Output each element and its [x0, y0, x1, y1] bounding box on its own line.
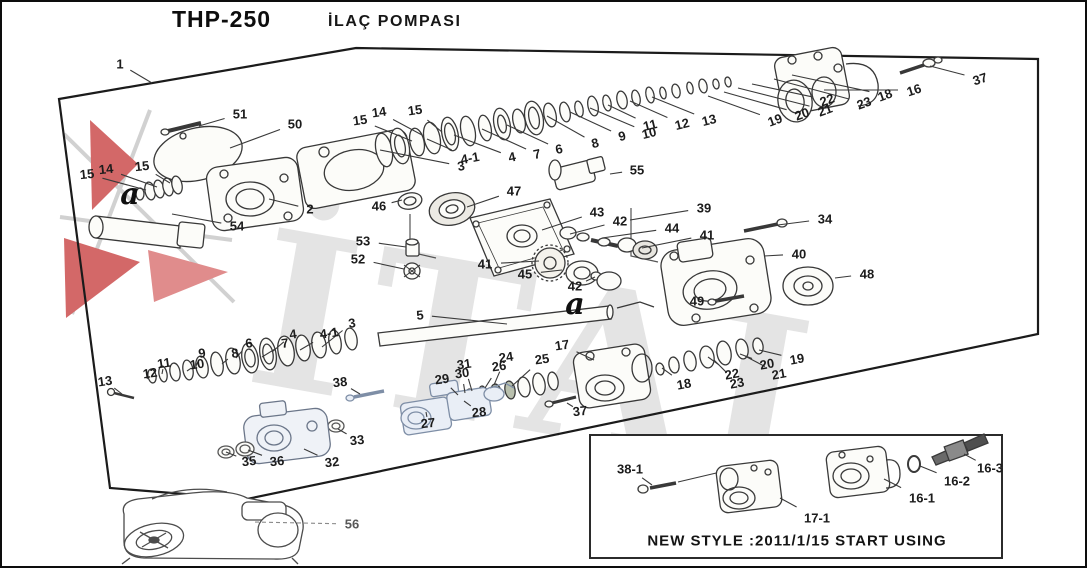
part-callout-27: 27: [420, 416, 436, 430]
leader-line-17-1: [780, 498, 797, 507]
leader-line-17: [577, 352, 595, 360]
part-callout-55: 55: [630, 164, 644, 177]
leader-line-41: [642, 238, 691, 248]
leader-line-45: [541, 270, 562, 272]
leader-line-13: [114, 388, 122, 394]
leader-line-8: [222, 359, 228, 364]
leader-line-26: [485, 378, 491, 388]
part-callout-1: 1: [116, 58, 123, 71]
part-callout-15: 15: [79, 167, 95, 181]
part-callout-12: 12: [142, 366, 158, 381]
leader-line-53: [379, 243, 406, 247]
leader-line-42: [570, 225, 605, 234]
page-title-model: THP-250: [172, 6, 271, 33]
part-callout-19: 19: [789, 351, 806, 366]
part-callout-48: 48: [860, 268, 874, 281]
part-callout-33: 33: [349, 433, 365, 447]
part-callout-15: 15: [352, 113, 368, 128]
leader-line-43: [542, 217, 582, 230]
leader-line-22: [708, 357, 719, 365]
leader-line-7: [262, 349, 275, 357]
part-callout-43: 43: [590, 206, 604, 219]
leader-line-18: [662, 368, 672, 375]
leader-line-12: [630, 101, 667, 118]
leader-line-16-2: [920, 466, 937, 473]
part-callout-46: 46: [372, 200, 386, 213]
leader-line-47: [467, 196, 499, 207]
part-callout-15: 15: [407, 103, 423, 118]
leader-line-42: [586, 277, 595, 281]
part-callout-28: 28: [471, 405, 487, 419]
part-callout-12: 12: [673, 116, 690, 132]
leader-line-6: [507, 125, 548, 144]
leader-line-13: [652, 97, 694, 114]
leader-line-38: [351, 389, 360, 394]
part-callout-13: 13: [97, 374, 113, 389]
part-callout-11: 11: [642, 117, 658, 133]
leader-line-29: [451, 388, 458, 395]
part-callout-35: 35: [241, 454, 257, 468]
part-callout-13: 13: [700, 112, 717, 128]
part-callout-37: 37: [572, 404, 588, 418]
leader-line-51: [199, 119, 225, 127]
leader-line-40: [764, 255, 783, 256]
part-callout-49: 49: [690, 295, 704, 308]
leader-line-46: [392, 200, 402, 203]
leader-line-8: [547, 116, 585, 137]
leader-line-20: [724, 92, 787, 110]
leader-line-16-1: [884, 479, 901, 488]
leader-line-22: [752, 84, 811, 97]
leader-line-33: [338, 429, 347, 434]
part-callout-11: 11: [156, 356, 171, 371]
part-callout-25: 25: [534, 352, 550, 367]
leader-line-56: [254, 522, 336, 524]
leader-line-32: [304, 449, 318, 455]
part-callout-56: 56: [345, 518, 359, 531]
leader-line-55: [610, 172, 622, 174]
new-style-caption: NEW STYLE :2011/1/15 START USING: [647, 533, 946, 550]
part-callout-40: 40: [792, 248, 806, 261]
leader-line-39: [630, 211, 688, 220]
leader-line-48: [835, 276, 851, 278]
leader-line-15: [427, 120, 442, 132]
leader-line-50: [230, 130, 280, 149]
leader-line-1: [130, 70, 152, 83]
part-callout-5: 5: [416, 308, 425, 322]
part-callout-39: 39: [697, 202, 711, 215]
leader-line-15: [156, 174, 170, 183]
part-callout-52: 52: [351, 253, 365, 266]
page-title-name: İLAÇ POMPASI: [328, 13, 462, 31]
part-callout-17: 17: [554, 338, 570, 353]
leader-line-30: [464, 384, 465, 393]
leader-line-21: [738, 88, 810, 106]
leader-line-14: [393, 120, 422, 136]
part-callout-41: 41: [700, 229, 714, 242]
leader-line-7: [482, 129, 526, 149]
leader-line-28: [464, 401, 471, 406]
leader-line-34: [770, 221, 809, 226]
part-callout-42: 42: [613, 215, 627, 228]
inset-part-callout-16-3: 16-3: [977, 462, 1003, 475]
leader-line-38-1: [642, 478, 652, 485]
part-callout-36: 36: [269, 454, 285, 468]
leader-line-44: [602, 230, 656, 238]
part-callout-29: 29: [434, 372, 450, 387]
inset-part-callout-16-2: 16-2: [944, 475, 970, 488]
part-callout-18: 18: [676, 376, 693, 391]
leader-line-25: [512, 370, 530, 386]
leader-line-35: [226, 452, 236, 456]
part-callout-10: 10: [189, 357, 205, 372]
leader-line-37: [930, 66, 965, 75]
leader-line-52: [374, 262, 404, 269]
inset-part-callout-38-1: 38-1: [617, 463, 643, 476]
leader-line-18: [792, 75, 869, 92]
part-callout-4-1: 4-1: [460, 150, 481, 166]
leader-line-41: [501, 261, 539, 263]
leader-line-2: [269, 199, 298, 206]
part-callout-15: 15: [134, 159, 150, 173]
zone-letter-a: a: [120, 180, 139, 210]
part-callout-22: 22: [724, 366, 741, 381]
leader-line-4-1: [300, 342, 313, 350]
part-callout-45: 45: [518, 268, 532, 281]
leader-line-4-1: [427, 139, 452, 150]
zone-letter-a: a: [565, 290, 584, 320]
leader-line-19: [708, 96, 760, 115]
part-callout-34: 34: [818, 213, 832, 226]
leader-line-54: [172, 214, 221, 223]
leader-line-3: [380, 150, 449, 164]
inset-part-callout-17-1: 17-1: [804, 512, 830, 525]
leader-line-16-3: [964, 454, 976, 460]
part-callout-20: 20: [759, 356, 776, 371]
part-callout-4-1: 4-1: [319, 325, 339, 340]
part-callout-41: 41: [478, 258, 492, 271]
part-callout-31: 31: [456, 357, 472, 372]
part-callout-24: 24: [498, 350, 514, 365]
inset-part-callout-16-1: 16-1: [909, 492, 935, 505]
part-callout-44: 44: [665, 222, 679, 235]
part-callout-14: 14: [371, 105, 387, 120]
part-callout-54: 54: [230, 220, 244, 233]
leader-line-31: [468, 379, 472, 391]
leader-line-23: [774, 79, 849, 99]
part-callout-53: 53: [356, 235, 370, 248]
part-callout-32: 32: [324, 455, 340, 469]
leader-line-5: [432, 316, 507, 324]
leader-line-11: [608, 105, 636, 118]
part-callout-14: 14: [98, 162, 114, 176]
leader-line-49: [713, 298, 735, 300]
part-callout-38: 38: [332, 375, 348, 389]
leader-line-20: [740, 354, 752, 359]
part-callout-2: 2: [306, 203, 313, 216]
catalog-page: İTAL: [0, 0, 1087, 568]
leader-lines-layer: [2, 2, 1087, 568]
part-callout-47: 47: [507, 185, 521, 198]
leader-line-19: [759, 350, 781, 355]
part-callout-51: 51: [233, 108, 247, 121]
part-callout-50: 50: [288, 118, 302, 131]
leader-line-15: [375, 126, 412, 141]
